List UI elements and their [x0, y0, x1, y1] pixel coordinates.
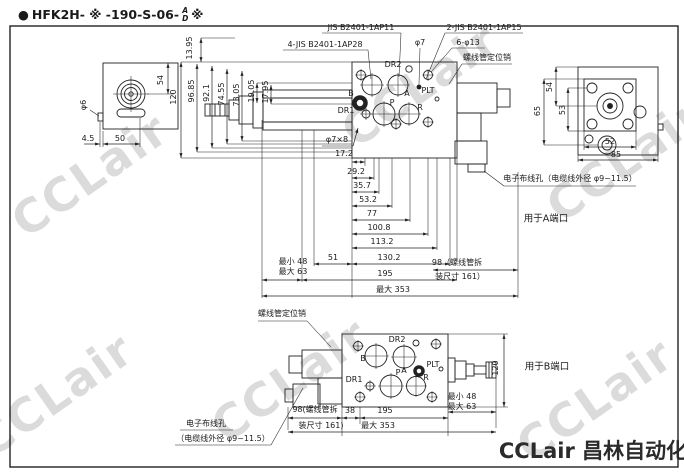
port-label-a-top: A	[404, 90, 409, 98]
right-side-view	[578, 67, 663, 155]
bullet-icon: ●	[18, 7, 29, 22]
left-side-view	[98, 63, 178, 129]
port-label-r-bottom: R	[423, 374, 429, 382]
dim-51: 51	[328, 254, 338, 262]
model-code: HFK2H- ※ -190-S-06-	[32, 7, 179, 22]
dim-phi6: φ6	[80, 100, 88, 110]
port-label-dr2-top: DR2	[385, 61, 402, 69]
dim-sol98-bottom: 98(螺线管拆	[292, 406, 337, 414]
dim-min48-top: 最小 48	[279, 258, 308, 266]
port-label-r-top: R	[417, 104, 423, 112]
callout-phi7x8: φ7×8	[326, 136, 348, 144]
port-label-b-bottom: B	[360, 355, 366, 363]
dim-13-95: 13.95	[186, 37, 194, 60]
callout-jis-ap15: 2-JIS B2401-1AP15	[446, 24, 521, 32]
callout-6-phi13: 6-φ13	[456, 39, 479, 47]
dim-sol98-top: 98（螺线管拆	[432, 259, 482, 267]
dim-65-right-view: 65	[534, 106, 542, 116]
dim-96-85: 96.85	[188, 80, 196, 103]
dim-38: 38	[345, 407, 355, 415]
note-port-b: 用于B端口	[525, 362, 570, 372]
callout-solenoid-pin-bottom: 螺线管定位销	[258, 310, 306, 318]
brand-logo: CCLair 昌林自动化	[499, 435, 684, 465]
dim-4-5: 4.5	[82, 135, 95, 143]
dim-sol161-bottom: 装尺寸 161)	[299, 422, 344, 430]
dim-100-8: 100.8	[368, 224, 391, 232]
port-label-a-bottom: A	[401, 367, 406, 375]
dim-max63-bottom: 最大 63	[448, 403, 477, 411]
drawing-title: ● HFK2H- ※ -190-S-06- A D ※	[18, 7, 203, 23]
port-label-dr2-bottom: DR2	[389, 336, 406, 344]
dim-29-2: 29.2	[347, 168, 365, 176]
dim-195-bottom: 195	[377, 407, 392, 415]
dim-130-2: 130.2	[378, 254, 401, 262]
dim-min48-bottom: 最小 48	[448, 393, 477, 401]
note-port-a: 用于A端口	[524, 214, 569, 224]
port-label-b-top: B	[348, 90, 354, 98]
dim-54-right-view: 54	[546, 82, 554, 92]
callout-wiring-hole-bottom-line1: 电子布线孔	[186, 420, 226, 428]
dim-92-1: 92.1	[203, 84, 211, 102]
drawing-canvas: CCLair CCLair CCLair CCLair CCLair CCLai…	[0, 0, 684, 476]
dim-195-top: 195	[377, 270, 392, 278]
dim-74-55: 74.55	[218, 83, 226, 106]
drawing-linework	[0, 0, 684, 476]
dim-50: 50	[115, 135, 125, 143]
dim-max63-top: 最大 63	[279, 268, 308, 276]
dim-52-right-view: 52	[605, 138, 615, 146]
port-label-p-bottom: P	[396, 369, 401, 377]
port-label-plt-bottom: PLT	[426, 361, 439, 369]
variant-bottom: D	[182, 15, 188, 23]
callout-phi7: φ7	[415, 39, 425, 47]
callout-wiring-hole-bottom-line2: （电缆线外径 φ9~11.5）	[176, 435, 269, 443]
dim-35-7: 35.7	[353, 182, 371, 190]
dim-113-2: 113.2	[371, 238, 394, 246]
dim-max353-top: 最大 353	[376, 286, 410, 294]
model-code-suffix: ※	[191, 7, 203, 22]
port-label-plt-top: PLT	[421, 87, 434, 95]
dim-73-05: 73.05	[233, 84, 241, 107]
callout-solenoid-pin: 螺线管定位销	[463, 54, 511, 62]
callout-jis-ap11: JIS B2401-1AP11	[328, 24, 395, 32]
dim-17-2: 17.2	[335, 150, 353, 158]
port-label-p-top: P	[390, 99, 395, 107]
dim-54-left-view: 54	[157, 75, 165, 85]
top-main-view	[205, 62, 510, 172]
dim-sol161-top: 装尺寸 161）	[435, 273, 485, 281]
dim-max353-bottom: 最大 353	[361, 422, 395, 430]
dim-120-top: 120	[170, 89, 178, 104]
port-label-dr1-bottom: DR1	[346, 376, 363, 384]
dim-120-bottom: 120	[492, 360, 500, 375]
dim-53-2: 53.2	[359, 196, 377, 204]
model-code-variant-stack: A D	[182, 7, 188, 23]
dim-19-05: 19.05	[248, 80, 256, 103]
callout-wiring-hole-top: 电子布线孔（电缆线外径 φ9~11.5）	[503, 175, 636, 183]
callout-jis-ap28: 4-JIS B2401-1AP28	[287, 41, 362, 49]
leader-arrows	[84, 128, 358, 146]
dim-53-right-view: 53	[559, 105, 567, 115]
dim-77: 77	[367, 210, 377, 218]
dim-85-right-view: 85	[611, 151, 621, 159]
port-label-dr1-top: DR1	[338, 107, 355, 115]
dim-17-95: 17.95	[262, 81, 270, 104]
